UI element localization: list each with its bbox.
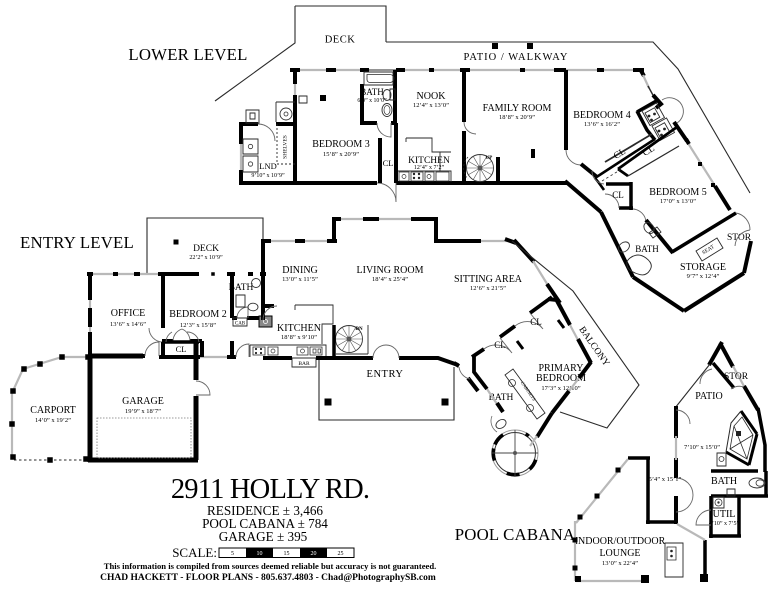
svg-text:UP: UP: [486, 156, 493, 161]
svg-text:SHELVES: SHELVES: [283, 135, 289, 159]
svg-text:ENTRY: ENTRY: [367, 369, 404, 380]
svg-text:CL: CL: [612, 190, 624, 200]
svg-text:12’6” x 21’5”: 12’6” x 21’5”: [470, 285, 506, 292]
svg-text:DECK: DECK: [193, 244, 219, 254]
svg-text:12’3” x 15’8”: 12’3” x 15’8”: [180, 322, 216, 329]
svg-text:STORAGE: STORAGE: [680, 262, 726, 273]
svg-text:DN: DN: [355, 327, 363, 332]
svg-text:13’6” x 14’6”: 13’6” x 14’6”: [110, 321, 146, 328]
svg-text:BATH: BATH: [229, 283, 254, 293]
svg-text:BATH: BATH: [635, 244, 659, 254]
svg-text:22’2” x 10’9”: 22’2” x 10’9”: [189, 255, 223, 261]
svg-text:FAMILY ROOM: FAMILY ROOM: [483, 103, 552, 114]
svg-text:20: 20: [311, 551, 317, 557]
svg-text:DECK: DECK: [325, 35, 356, 46]
svg-text:6’0” x 10’0”: 6’0” x 10’0”: [357, 98, 387, 104]
svg-text:10: 10: [257, 551, 263, 557]
svg-text:BEDROOM 4: BEDROOM 4: [573, 110, 631, 121]
svg-text:18’8” x 20’9”: 18’8” x 20’9”: [499, 114, 535, 121]
svg-text:NOOK: NOOK: [417, 91, 447, 102]
svg-text:BEDROOM 5: BEDROOM 5: [649, 187, 707, 198]
svg-text:BATH: BATH: [711, 476, 737, 487]
svg-text:19’9” x 18’7”: 19’9” x 18’7”: [125, 408, 161, 415]
svg-text:2911 HOLLY RD.: 2911 HOLLY RD.: [171, 474, 369, 505]
svg-text:BEDROOM 3: BEDROOM 3: [312, 139, 370, 150]
svg-text:SCALE:: SCALE:: [172, 545, 217, 560]
svg-text:15’8” x 20’9”: 15’8” x 20’9”: [323, 151, 359, 158]
svg-text:OFFICE: OFFICE: [111, 308, 145, 319]
svg-text:LND: LND: [259, 161, 276, 171]
svg-text:7’10” x 15’0”: 7’10” x 15’0”: [684, 444, 720, 451]
svg-text:12’4” x 13’0”: 12’4” x 13’0”: [413, 102, 449, 109]
svg-text:4’10” x 7’5”: 4’10” x 7’5”: [709, 521, 740, 527]
svg-text:GARAGE ± 395: GARAGE ± 395: [219, 529, 308, 544]
svg-text:This information is compiled f: This information is compiled from source…: [104, 561, 437, 571]
svg-text:ENTRY LEVEL: ENTRY LEVEL: [20, 233, 134, 252]
svg-text:18’4” x 25’4”: 18’4” x 25’4”: [372, 276, 408, 283]
svg-text:KITCHEN: KITCHEN: [277, 323, 321, 334]
svg-text:9’10” x 10’9”: 9’10” x 10’9”: [251, 173, 285, 179]
svg-text:INDOOR/OUTDOOR: INDOOR/OUTDOOR: [575, 536, 666, 547]
svg-text:5’4” x 15’1”: 5’4” x 15’1”: [649, 476, 682, 483]
svg-text:BAR: BAR: [298, 361, 310, 367]
svg-text:18’8” x 9’10”: 18’8” x 9’10”: [281, 334, 317, 341]
svg-text:CL: CL: [494, 340, 506, 350]
svg-text:CL: CL: [530, 317, 542, 327]
svg-text:CL: CL: [176, 344, 187, 354]
svg-text:25: 25: [338, 551, 344, 557]
svg-text:13’6” x 16’2”: 13’6” x 16’2”: [584, 121, 620, 128]
svg-text:LOUNGE: LOUNGE: [599, 548, 640, 559]
svg-text:SITTING AREA: SITTING AREA: [454, 274, 523, 285]
svg-text:LIVING ROOM: LIVING ROOM: [357, 265, 424, 276]
svg-text:17’0” x 13’0”: 17’0” x 13’0”: [660, 198, 696, 205]
svg-text:13’0” x 11’5”: 13’0” x 11’5”: [282, 276, 318, 283]
svg-text:5: 5: [231, 551, 234, 557]
svg-text:POOL CABANA: POOL CABANA: [455, 525, 575, 544]
svg-text:UTIL: UTIL: [713, 509, 736, 520]
svg-text:BEDROOM 2: BEDROOM 2: [169, 309, 227, 320]
svg-text:PATIO: PATIO: [695, 391, 722, 402]
svg-text:9’7” x 12’4”: 9’7” x 12’4”: [687, 273, 720, 280]
svg-text:CHAD HACKETT - FLOOR PLANS - 8: CHAD HACKETT - FLOOR PLANS - 805.637.480…: [100, 573, 436, 583]
svg-text:BATH: BATH: [360, 87, 384, 97]
svg-text:PATIO / WALKWAY: PATIO / WALKWAY: [463, 52, 568, 63]
svg-text:13’0” x 22’4”: 13’0” x 22’4”: [602, 560, 638, 567]
svg-text:CAB: CAB: [235, 322, 246, 327]
svg-text:LOWER LEVEL: LOWER LEVEL: [128, 45, 247, 64]
svg-text:STOR: STOR: [727, 233, 752, 243]
svg-text:CARPORT: CARPORT: [30, 405, 76, 416]
svg-text:GARAGE: GARAGE: [122, 396, 164, 407]
svg-text:CL: CL: [383, 158, 394, 168]
svg-text:15: 15: [284, 551, 290, 557]
svg-text:DINING: DINING: [282, 265, 318, 276]
svg-text:14’0” x 19’2”: 14’0” x 19’2”: [35, 417, 71, 424]
svg-text:17’3” x 12’10”: 17’3” x 12’10”: [541, 385, 580, 392]
